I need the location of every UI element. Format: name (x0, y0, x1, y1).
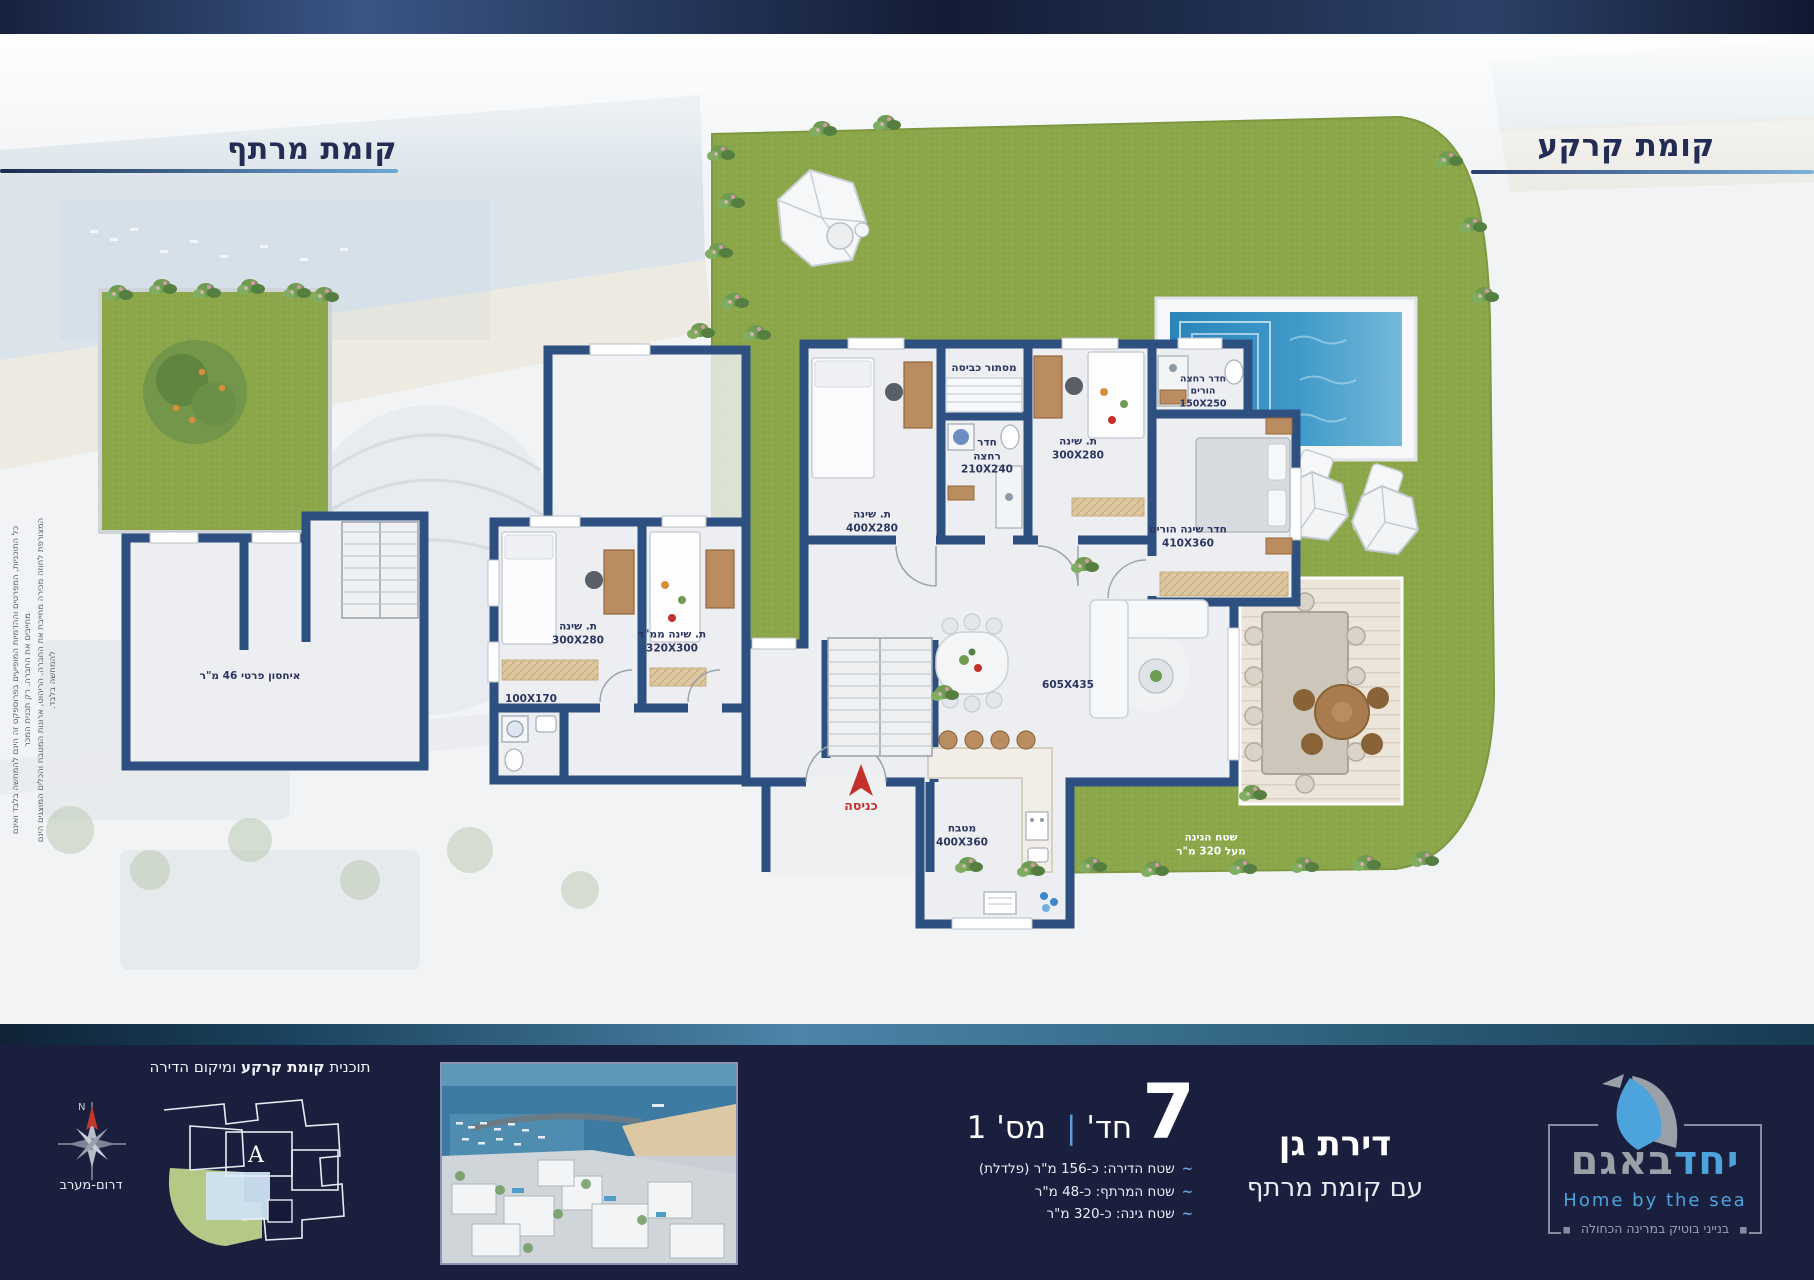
logo-name-part2: באגם (1570, 1138, 1673, 1184)
logo-tagline-he: ◼בנייני בוטיק במרינה הכחולה◼ (1518, 1218, 1792, 1237)
unit-number: מס' 1 (967, 1110, 1046, 1146)
logo-tagline-he-text: בנייני בוטיק במרינה הכחולה (1573, 1221, 1737, 1236)
project-photo (440, 1062, 738, 1265)
area-garden: ~שטח גינה: כ-320 מ"ר (850, 1203, 1193, 1225)
diagram-title: תוכנית קומת קרקע ומיקום הדירה (110, 1058, 410, 1076)
area-apartment-text: שטח הדירה: כ-156 מ"ר (פלדלת) (979, 1161, 1175, 1177)
closet-icon (650, 668, 706, 686)
desk-icon (706, 550, 734, 608)
chair-icon (585, 571, 603, 589)
label-bedroom-3: ת. שינה 300X280 (552, 620, 604, 647)
ground-floor-title: קומת קרקע (1476, 128, 1776, 164)
rooms-word: חד' (1086, 1110, 1132, 1146)
label-bathroom: חדר רחצה 210X240 (961, 437, 1013, 478)
area-basement: ~שטח המרתף: כ-48 מ"ר (850, 1181, 1193, 1203)
bed-icon (502, 532, 556, 644)
logo-name: יחדבאגם (1548, 1138, 1762, 1184)
closet-icon (1160, 572, 1288, 596)
building-location-diagram: A (130, 1090, 370, 1260)
desk-icon (604, 550, 634, 614)
desk-icon (904, 362, 932, 428)
diagram-title-prefix: תוכנית (325, 1058, 371, 1076)
unit-type-line1: דירת גן (1185, 1124, 1485, 1164)
area-apartment: ~שטח הדירה: כ-156 מ"ר (פלדלת) (850, 1158, 1193, 1180)
unit-summary: 7 חד' | מס' 1 ~שטח הדירה: כ-156 מ"ר (פלד… (850, 1076, 1195, 1225)
desk-icon (1034, 356, 1062, 418)
building-letter: A (247, 1143, 265, 1168)
chair-icon (885, 383, 903, 401)
areas-list: ~שטח הדירה: כ-156 מ"ר (פלדלת) ~שטח המרתף… (850, 1158, 1193, 1225)
area-basement-text: שטח המרתף: כ-48 מ"ר (1035, 1184, 1175, 1200)
toilet-icon (505, 749, 523, 771)
disclaimer-vertical: כל התוכניות, המפרטים וההדמיות המופיעים ב… (10, 514, 59, 846)
logo-tagline-en: Home by the sea (1548, 1190, 1762, 1211)
bullet-icon: ◼ (1561, 1225, 1573, 1236)
compass-label: דרום-מערב (36, 1178, 146, 1193)
unit-type-line2: עם קומת מרתף (1185, 1173, 1485, 1203)
basement-plan (100, 279, 424, 766)
bed-icon (812, 358, 874, 478)
tilde-icon: ~ (1182, 1206, 1193, 1222)
label-basement-storage: איחסון פרטי 46 מ"ר (200, 670, 301, 684)
chair-icon (1065, 377, 1083, 395)
label-garden-area: שטח הגינה מעל 320 מ"ר (1176, 831, 1246, 858)
bed-icon (650, 532, 700, 642)
rooms-separator: | (1066, 1110, 1076, 1146)
label-parents-bedroom: חדר שינה הורים 410X360 (1149, 523, 1227, 550)
area-garden-text: שטח גינה: כ-320 מ"ר (1047, 1206, 1175, 1222)
diagram-title-bold: קומת קרקע (241, 1058, 325, 1076)
label-small-bathroom: 100X170 (505, 693, 557, 707)
label-living-room: 605X435 (1042, 679, 1094, 693)
disclaimer-line1: כל התוכניות, המפרטים וההדמיות המופיעים ב… (10, 514, 35, 846)
footer-accent-strip (0, 1024, 1814, 1045)
basement-staircase (342, 522, 418, 618)
left-wing-rooms (488, 516, 746, 780)
label-mamad-bedroom: ת. שינה ממ"ד 320X300 (638, 628, 706, 655)
closet-icon (502, 660, 598, 680)
basement-title: קומת מרתף (212, 132, 412, 167)
rooms-count-row: 7 חד' | מס' 1 (850, 1076, 1195, 1148)
staircase (828, 638, 932, 756)
compass-north-letter: N (78, 1102, 85, 1113)
label-parents-bathroom: חדר רחצה הורים 150X250 (1180, 373, 1227, 410)
bed-icon (1088, 352, 1144, 438)
brochure-page: קומת קרקע קומת מרתף כל התוכניות, המפרטים… (0, 0, 1814, 1280)
unit-type: דירת גן עם קומת מרתף (1185, 1124, 1485, 1203)
label-laundry: מסתור כביסה (951, 362, 1016, 376)
label-bedroom-2: ת. שינה 300X280 (1052, 435, 1104, 462)
patio-terrace (548, 344, 746, 526)
diagram-title-suffix: ומיקום הדירה (150, 1058, 241, 1076)
ground-floor-title-underline (1471, 170, 1814, 174)
washing-machine-icon (502, 716, 528, 742)
closet-icon (1072, 498, 1144, 516)
label-kitchen: מטבח 400X360 (936, 822, 988, 849)
label-bedroom-1: ת. שינה 400X280 (846, 508, 898, 535)
basement-title-underline (0, 169, 398, 173)
basement-garden-tree (143, 340, 247, 444)
logo-name-part1: יחד (1674, 1138, 1740, 1184)
bullet-icon: ◼ (1737, 1225, 1749, 1236)
sink-icon (536, 716, 556, 732)
disclaimer-line2: המצורפת לחוזה מכירה מחייבת את החברה. הרי… (35, 514, 60, 846)
compass-icon: N (50, 1096, 134, 1186)
laundry-screen-icon (946, 378, 1022, 412)
label-entrance: כניסה (844, 798, 878, 814)
